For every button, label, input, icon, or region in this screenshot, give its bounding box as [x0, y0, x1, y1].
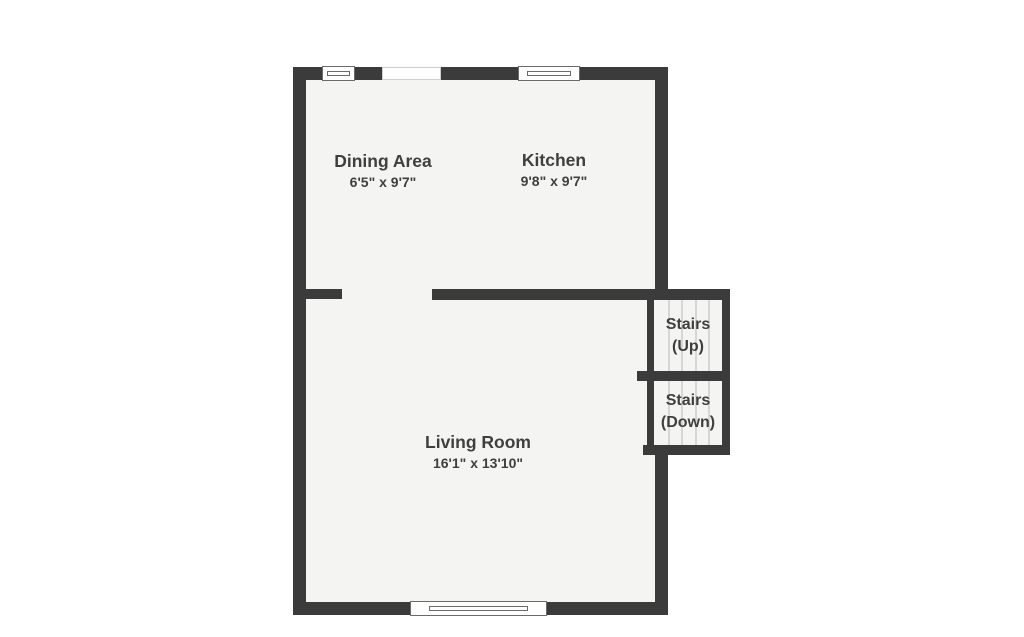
room-name: Living Room — [425, 431, 531, 453]
window-pane-icon — [527, 71, 571, 76]
room-label-dining: Dining Area 6'5" x 9'7" — [334, 150, 432, 192]
room-name: Kitchen — [521, 149, 588, 171]
room-name: Dining Area — [334, 150, 432, 172]
stairs-name: Stairs — [661, 390, 715, 412]
room-dimensions: 9'8" x 9'7" — [521, 171, 588, 191]
stairs-wall-middle — [637, 371, 730, 381]
wall-right-upper — [655, 67, 668, 300]
top-wall-opening — [382, 67, 441, 80]
divider-wall-left-stub — [293, 289, 342, 299]
room-label-kitchen: Kitchen 9'8" x 9'7" — [521, 149, 588, 191]
stairs-name: Stairs — [666, 314, 710, 336]
stairs-down-label: Stairs (Down) — [661, 390, 715, 434]
window-pane-icon — [429, 606, 529, 611]
kitchen-window-icon — [518, 66, 580, 81]
wall-right-lower — [655, 455, 668, 615]
room-dimensions: 16'1" x 13'10" — [425, 453, 531, 473]
room-label-living-room: Living Room 16'1" x 13'10" — [425, 431, 531, 473]
wall-left — [293, 67, 306, 615]
stairs-direction: (Up) — [666, 336, 710, 358]
divider-wall-main — [432, 289, 730, 300]
room-dimensions: 6'5" x 9'7" — [334, 172, 432, 192]
stairs-up-label: Stairs (Up) — [666, 314, 710, 358]
dining-window-icon — [322, 66, 355, 81]
floorplan-canvas: Dining Area 6'5" x 9'7" Kitchen 9'8" x 9… — [0, 0, 1024, 637]
window-pane-icon — [327, 71, 350, 76]
stairs-wall-bottom — [643, 445, 730, 455]
stairs-direction: (Down) — [661, 412, 715, 434]
living-room-window-icon — [410, 601, 547, 616]
